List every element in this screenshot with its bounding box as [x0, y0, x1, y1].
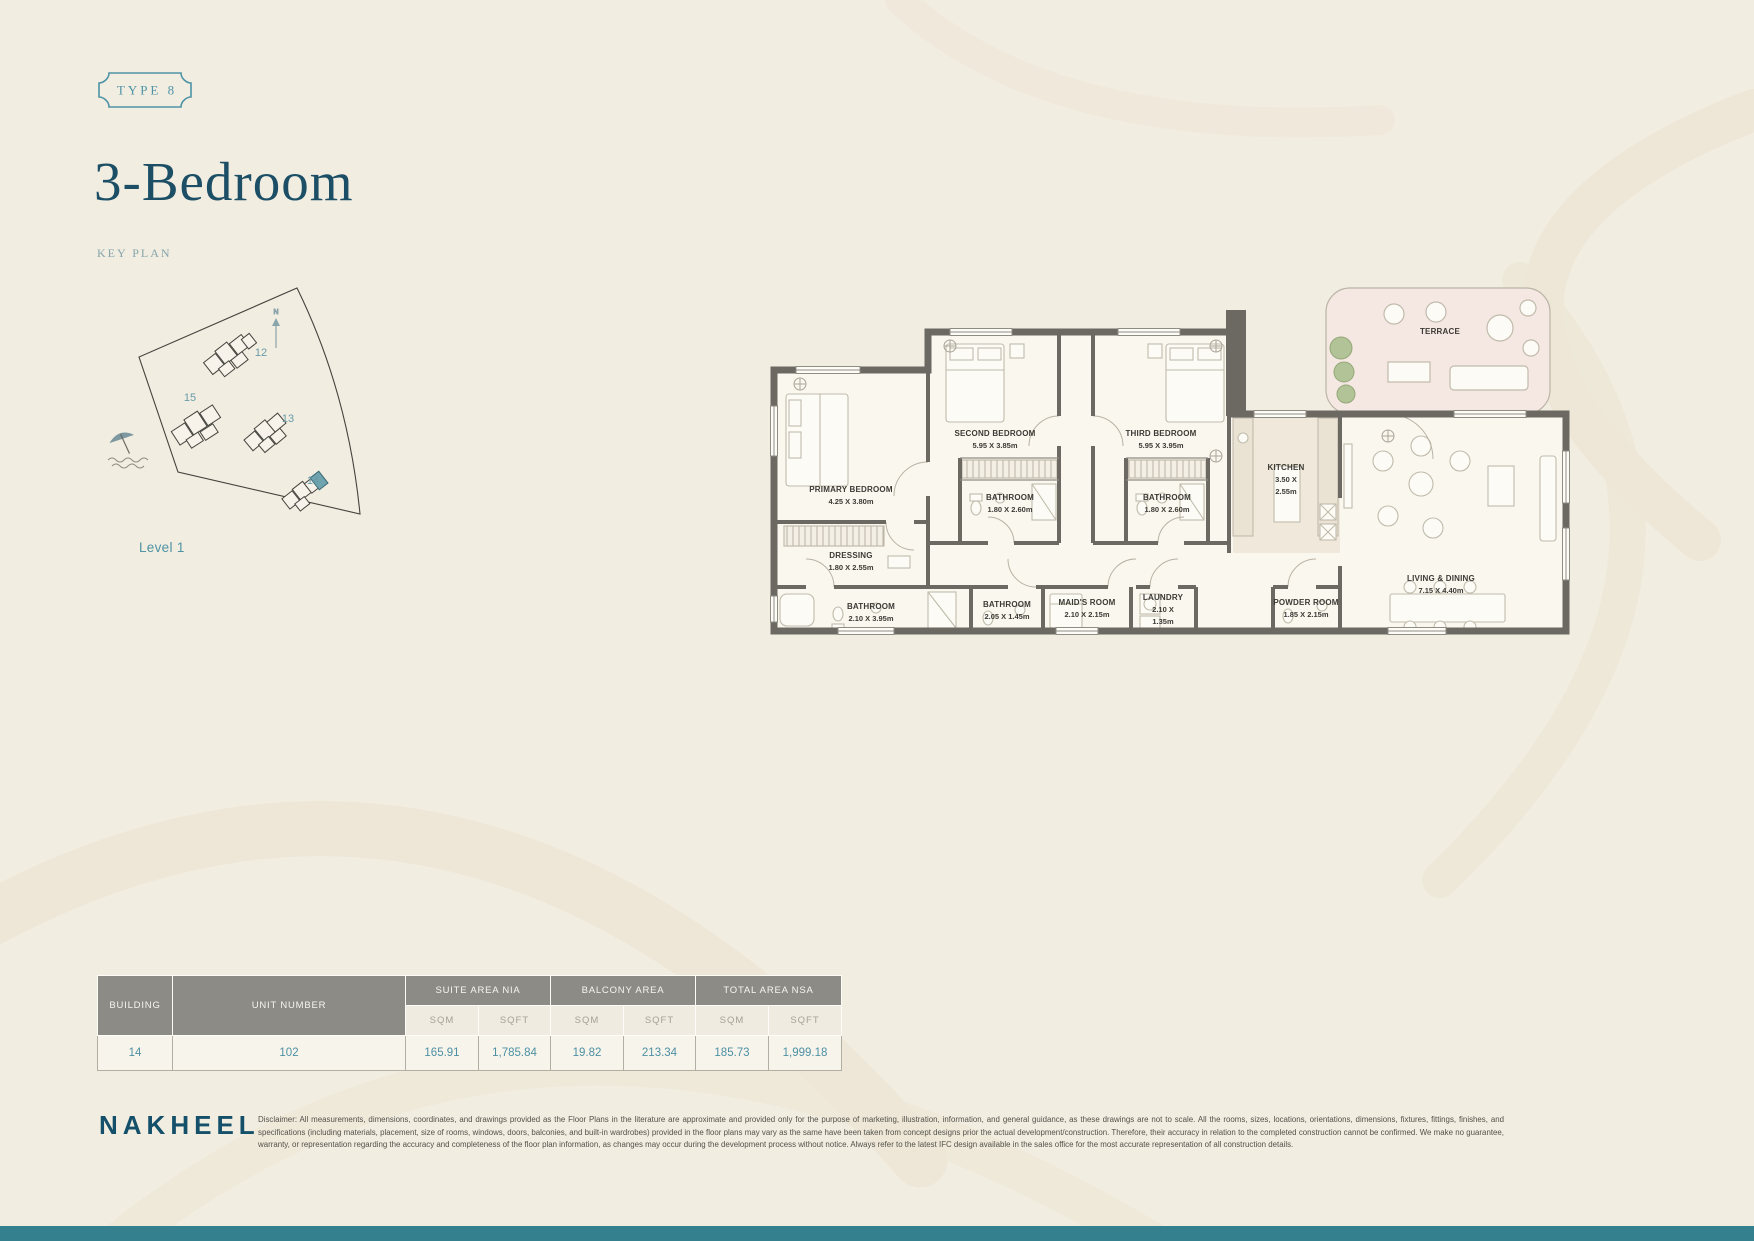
room-label-kitchen: KITCHEN	[1268, 463, 1305, 472]
room-label-dressing: DRESSING	[829, 551, 872, 560]
bottom-accent-bar	[0, 1226, 1754, 1241]
room-dims-dressing: 1.80 X 2.55m	[828, 563, 873, 572]
wardrobe-third-icon	[1128, 460, 1206, 478]
type-badge-label: TYPE 8	[117, 83, 177, 98]
brochure-page: TYPE 8 3-Bedroom KEY PLAN N 12 15	[0, 0, 1754, 1241]
cell-balcony-sqm: 19.82	[551, 1036, 624, 1071]
room-dims-primary-bedroom: 4.25 X 3.80m	[828, 497, 873, 506]
room-label-second-bedroom: SECOND BEDROOM	[954, 429, 1035, 438]
building-13-label: 13	[282, 413, 294, 425]
room-dims-maids-room: 2.10 X 2.15m	[1064, 610, 1109, 619]
room-label-bathroom-maid: BATHROOM	[983, 600, 1031, 609]
room-dims-laundry-1: 2.10 X	[1152, 605, 1174, 614]
room-label-laundry: LAUNDRY	[1143, 593, 1184, 602]
terrace-area: TERRACE	[1326, 288, 1550, 414]
cell-total-sqm: 185.73	[696, 1036, 769, 1071]
room-dims-kitchen-2: 2.55m	[1275, 487, 1297, 496]
room-dims-second-bedroom: 5.95 X 3.85m	[972, 441, 1017, 450]
building-15-label: 15	[184, 392, 196, 404]
cell-total-sqft: 1,999.18	[769, 1036, 842, 1071]
room-label-maids-room: MAID'S ROOM	[1059, 598, 1116, 607]
north-arrow-icon: N	[272, 309, 280, 348]
subheader-balcony-sqft: SQFT	[624, 1006, 696, 1036]
cell-balcony-sqft: 213.34	[624, 1036, 696, 1071]
cell-suite-sqm: 165.91	[406, 1036, 479, 1071]
room-label-bathroom-third: BATHROOM	[1143, 493, 1191, 502]
col-group-balcony-area: BALCONY AREA	[551, 976, 696, 1006]
wardrobe-primary-icon	[784, 526, 884, 546]
subheader-total-sqft: SQFT	[769, 1006, 842, 1036]
subheader-suite-sqm: SQM	[406, 1006, 479, 1036]
wardrobe-second-icon	[962, 460, 1058, 478]
building-12-label: 12	[255, 347, 267, 359]
subheader-total-sqm: SQM	[696, 1006, 769, 1036]
room-label-primary-bedroom: PRIMARY BEDROOM	[809, 485, 893, 494]
col-header-unit-number: UNIT NUMBER	[173, 976, 406, 1036]
room-dims-living-dining: 7.15 X 4.40m	[1418, 586, 1463, 595]
col-group-suite-area: SUITE AREA NIA	[406, 976, 551, 1006]
room-label-living-dining: LIVING & DINING	[1407, 574, 1475, 583]
nakheel-logo: NAKHEEL	[99, 1110, 260, 1141]
room-label-bathroom-second: BATHROOM	[986, 493, 1034, 502]
building-15-footprint	[170, 402, 227, 453]
room-label-terrace: TERRACE	[1420, 327, 1461, 336]
subheader-suite-sqft: SQFT	[479, 1006, 551, 1036]
subheader-balcony-sqm: SQM	[551, 1006, 624, 1036]
building-14-label: 14	[307, 475, 319, 487]
room-dims-laundry-2: 1.35m	[1152, 617, 1174, 626]
type-badge: TYPE 8	[96, 70, 194, 110]
col-header-building: BUILDING	[98, 976, 173, 1036]
cell-building: 14	[98, 1036, 173, 1071]
table-group-header-row: BUILDING UNIT NUMBER SUITE AREA NIA BALC…	[98, 976, 842, 1006]
room-dims-bathroom-second: 1.80 X 2.60m	[987, 505, 1032, 514]
disclaimer-text: Disclaimer: All measurements, dimensions…	[258, 1114, 1504, 1152]
page-title: 3-Bedroom	[94, 150, 354, 213]
level-label: Level 1	[139, 540, 185, 555]
building-12-footprint	[202, 328, 261, 383]
room-dims-bathroom-maid: 2.05 X 1.45m	[984, 612, 1029, 621]
room-label-third-bedroom: THIRD BEDROOM	[1125, 429, 1196, 438]
key-plan-map: N 12 15 13 14	[98, 262, 398, 542]
area-table: BUILDING UNIT NUMBER SUITE AREA NIA BALC…	[97, 975, 842, 1071]
room-dims-bathroom-primary: 2.10 X 3.95m	[848, 614, 893, 623]
floor-plan: TERRACE	[688, 266, 1578, 651]
dressing-bench-icon	[888, 556, 910, 568]
room-dims-kitchen-1: 3.50 X	[1275, 475, 1297, 484]
room-dims-bathroom-third: 1.80 X 2.60m	[1144, 505, 1189, 514]
key-plan-label: KEY PLAN	[97, 246, 172, 261]
bed-primary-icon	[786, 394, 848, 486]
room-dims-powder-room: 1.85 X 2.15m	[1283, 610, 1328, 619]
col-group-total-area: TOTAL AREA NSA	[696, 976, 842, 1006]
beach-umbrella-icon	[108, 430, 148, 468]
cell-suite-sqft: 1,785.84	[479, 1036, 551, 1071]
site-boundary	[139, 288, 360, 514]
north-label: N	[273, 309, 278, 316]
room-label-powder-room: POWDER ROOM	[1273, 598, 1338, 607]
room-label-bathroom-primary: BATHROOM	[847, 602, 895, 611]
table-data-row: 14 102 165.91 1,785.84 19.82 213.34 185.…	[98, 1036, 842, 1071]
room-dims-third-bedroom: 5.95 X 3.95m	[1138, 441, 1183, 450]
cell-unit-number: 102	[173, 1036, 406, 1071]
